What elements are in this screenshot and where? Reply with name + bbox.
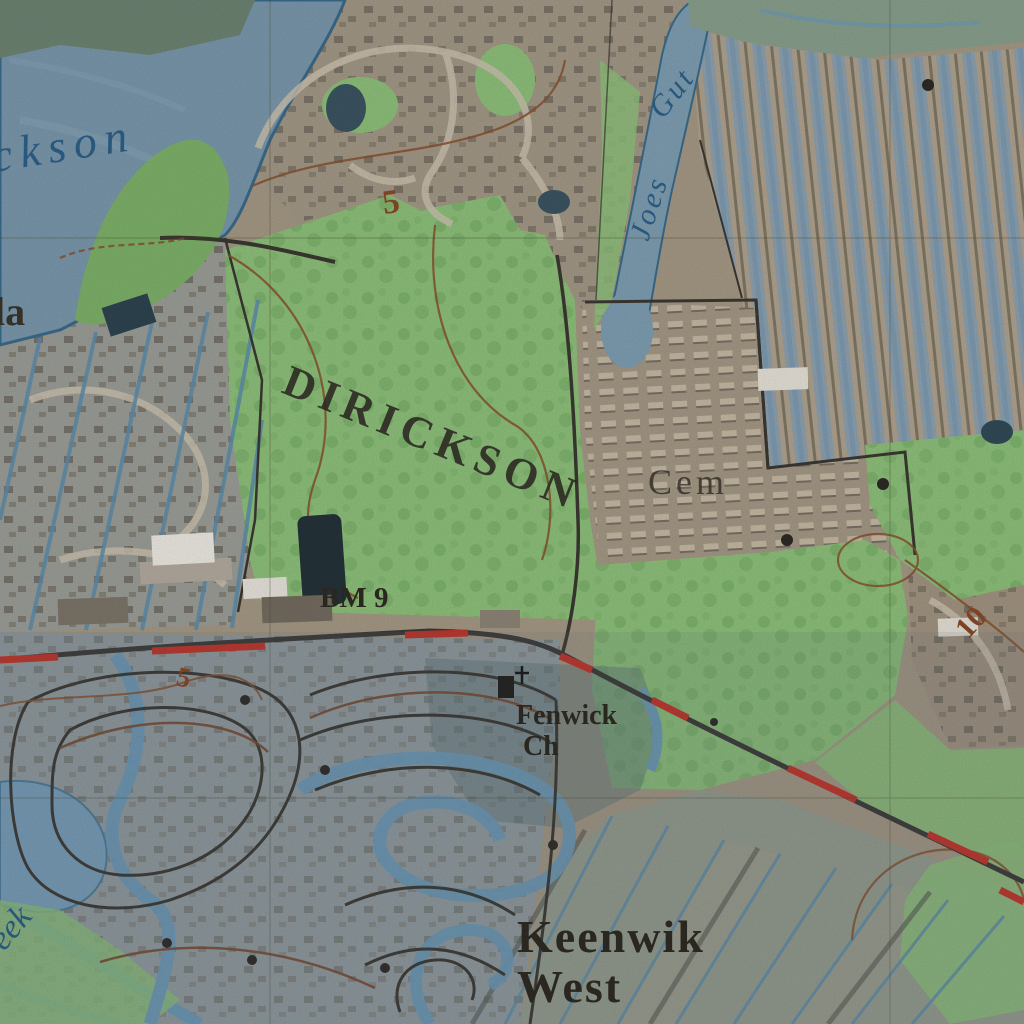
photo-grain-overlay — [0, 0, 1024, 1024]
map-canvas: ckson la DIRICKSON Joes Gut Cem BM 9 Fen… — [0, 0, 1024, 1024]
topo-photo-map[interactable]: ckson la DIRICKSON Joes Gut Cem BM 9 Fen… — [0, 0, 1024, 1024]
